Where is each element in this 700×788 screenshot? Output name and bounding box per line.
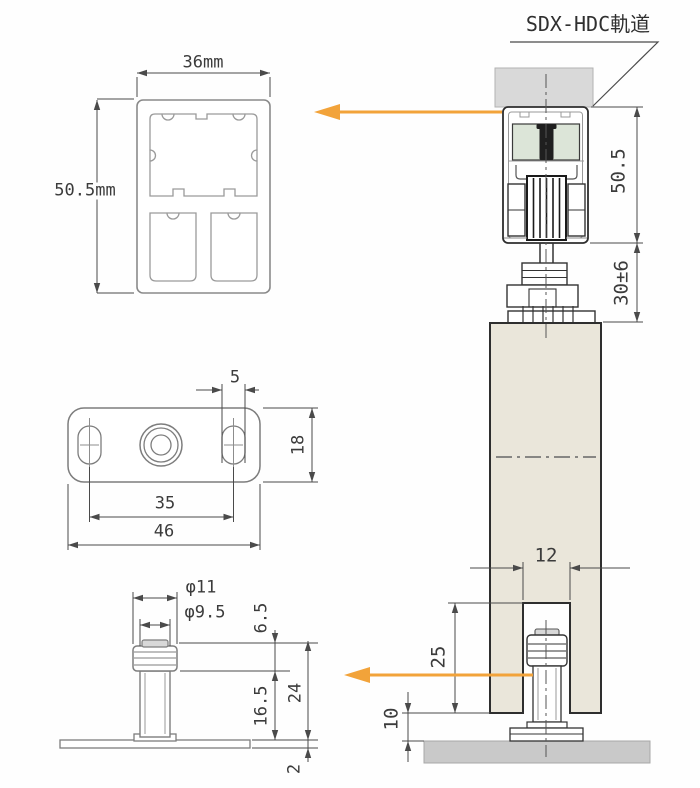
floor-guide-drawing [60,640,250,748]
dim-assembly-rail-height-label: 50.5 [610,148,629,194]
dim-rail-height-label: 50.5mm [51,183,118,200]
rail-callout-label: SDX-HDC軌道 [526,14,650,34]
dim-guide-total-height-label: 24 [288,683,305,703]
callout-arrow-top [314,104,502,120]
ceiling-block [495,68,593,107]
dim-plate-slot-width-label: 5 [230,370,240,387]
floor-block [424,741,650,763]
dim-plate-width-label: 46 [154,524,174,541]
drawing-canvas [0,0,700,788]
dim-groove-depth-label: 25 [430,646,449,669]
dim-guide-stem-height-label: 16.5 [254,686,271,727]
rail-cross-section-drawing [137,100,270,293]
dim-floor-clearance-label: 10 [383,708,402,731]
dim-guide-cap-height-label: 6.5 [254,603,271,634]
dim-guide-plate-thickness-label: 2 [287,764,304,774]
dim-rail-width-label: 36mm [183,55,224,72]
mount-plate-drawing [68,408,260,482]
dim-guide-cap-diameter-label: φ11 [186,580,217,597]
dim-plate-hole-spacing-label: 35 [155,496,175,513]
dim-guide-stem-diameter-label: φ9.5 [185,605,226,622]
dim-groove-width-label: 12 [535,547,558,566]
dim-hanger-range-label: 30±6 [613,260,632,306]
technical-drawing-page: SDX-HDC軌道 36mm 50.5mm 5 18 35 46 φ11 φ9.… [0,0,700,788]
dim-plate-height-label: 18 [291,435,308,455]
